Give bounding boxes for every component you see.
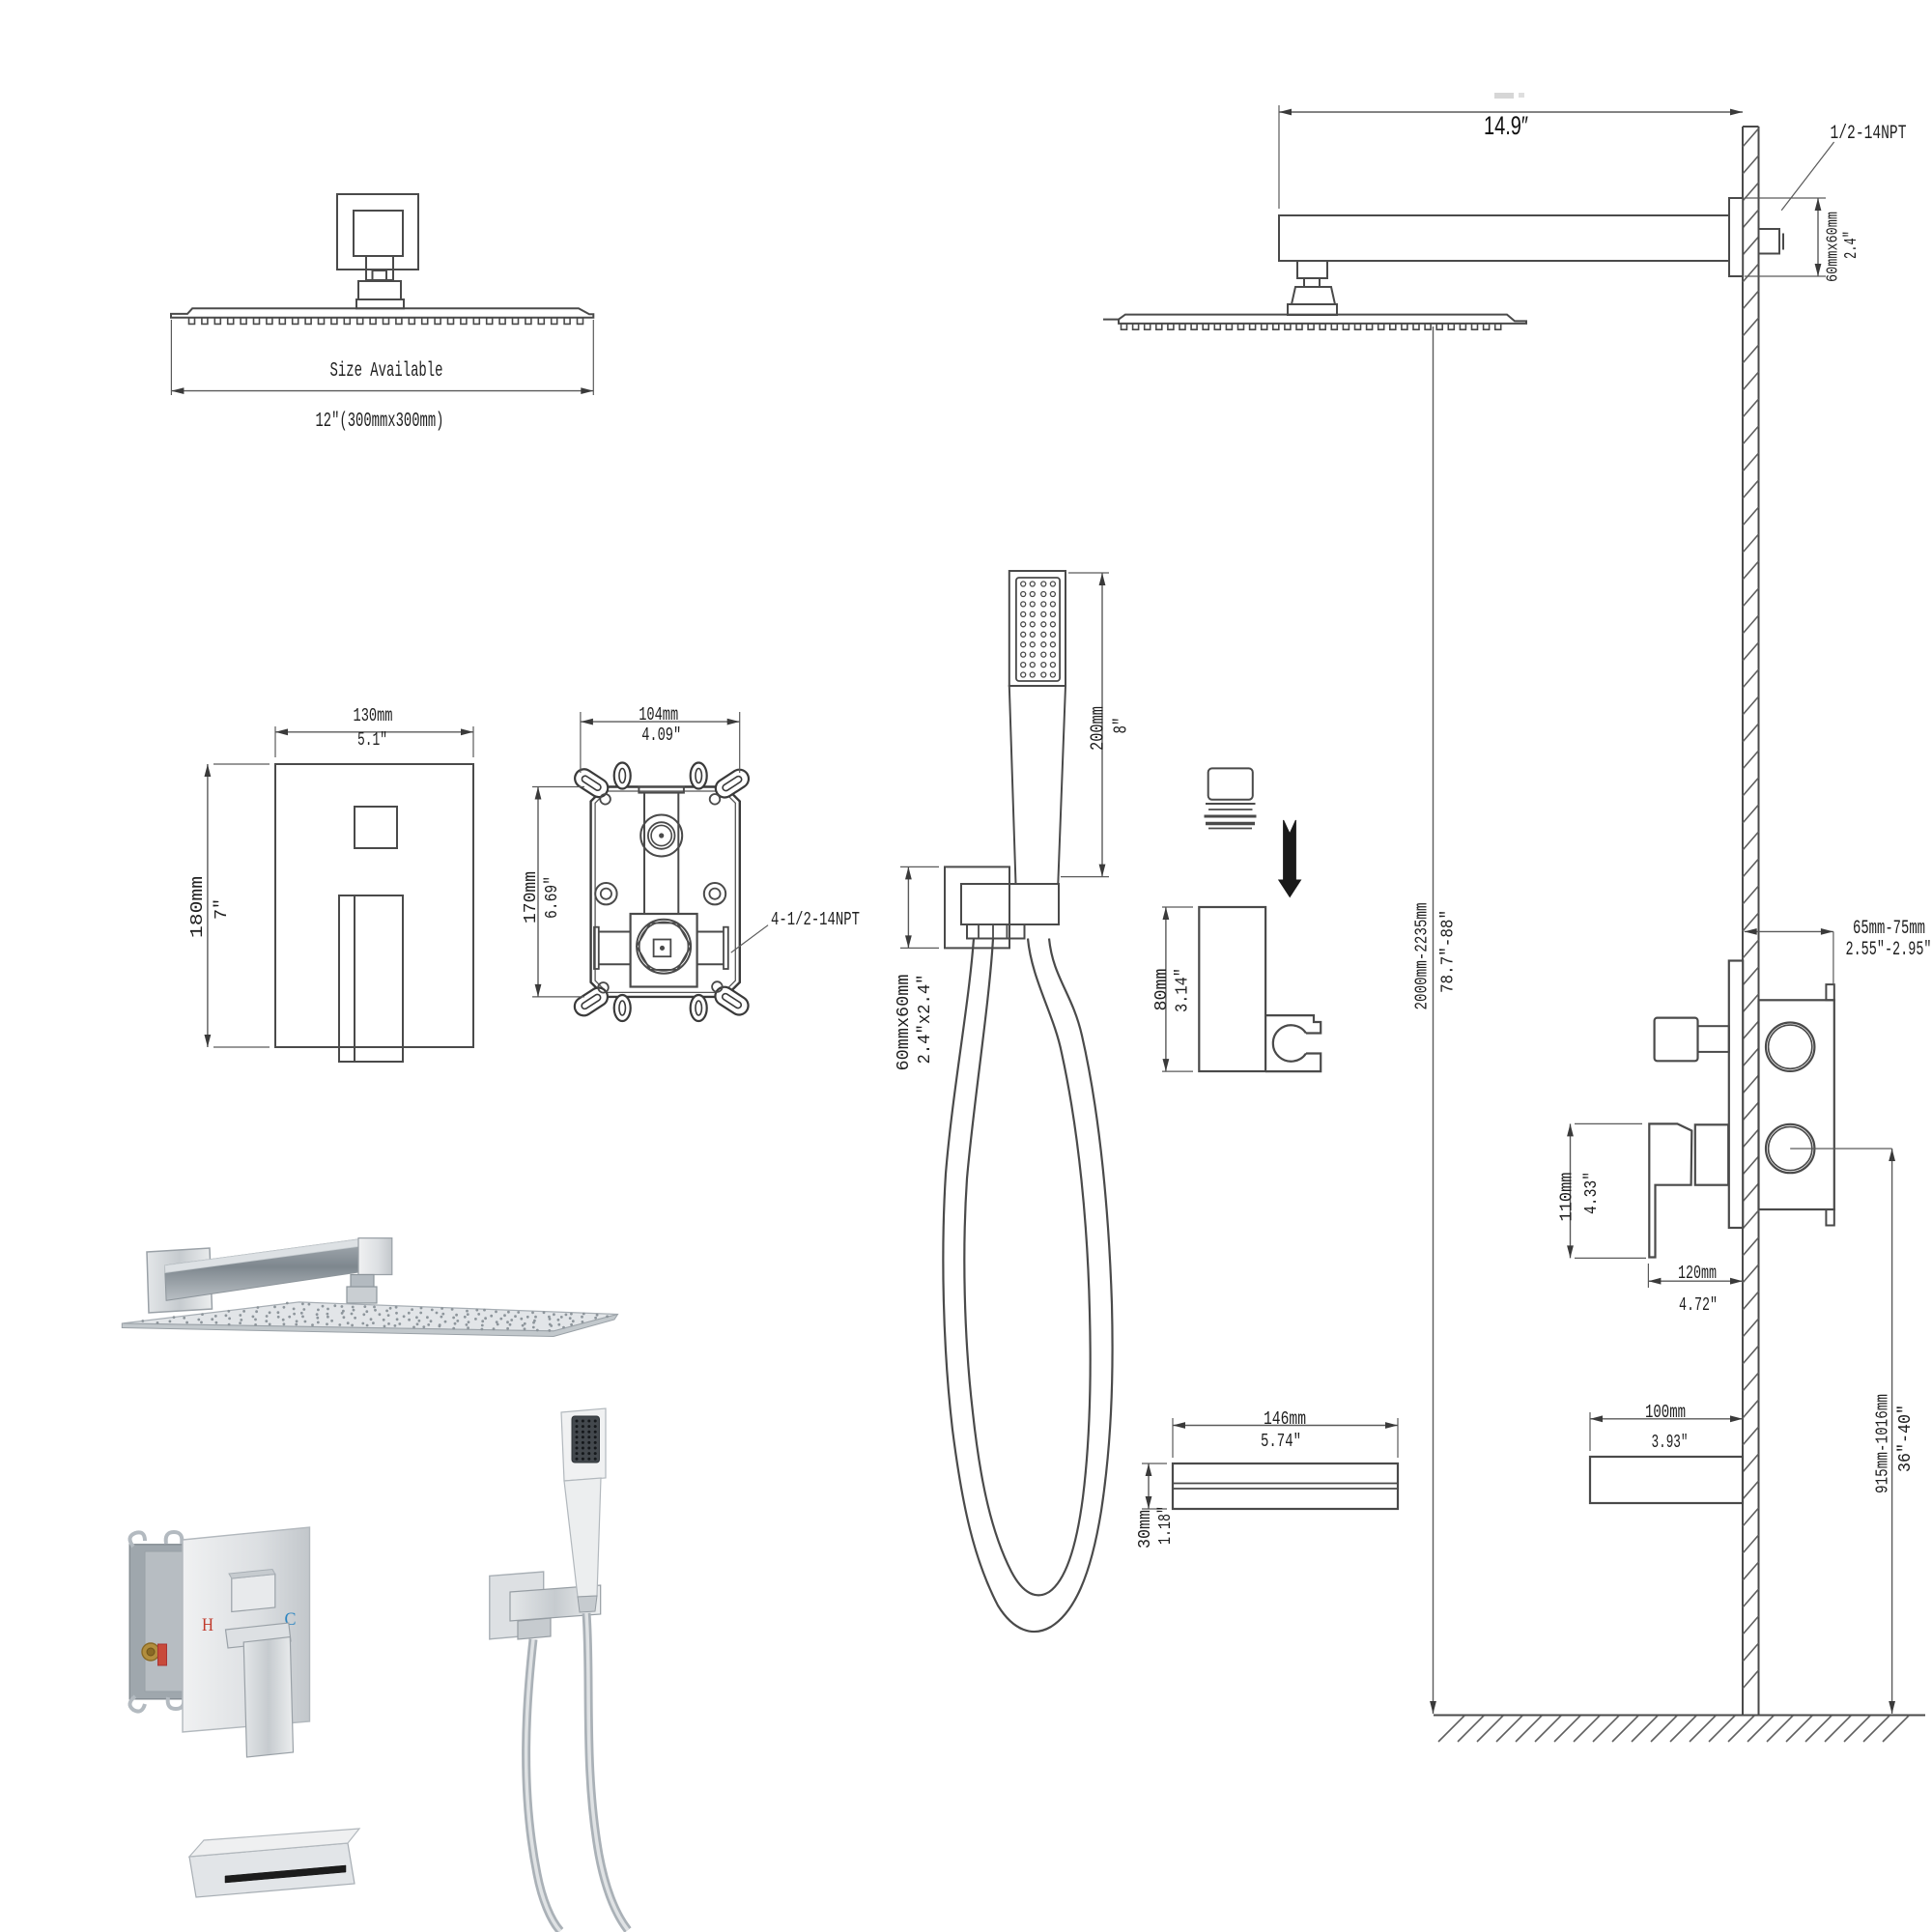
svg-text:3.93″: 3.93″: [1652, 1432, 1689, 1453]
svg-text:200mm: 200mm: [1087, 706, 1108, 751]
svg-text:14.9″: 14.9″: [1484, 111, 1528, 140]
svg-text:1.18″: 1.18″: [1156, 1506, 1176, 1545]
svg-text:2.55″-2.95″: 2.55″-2.95″: [1846, 939, 1932, 961]
svg-text:36″-40″: 36″-40″: [1896, 1405, 1916, 1472]
svg-text:180mm: 180mm: [188, 876, 208, 938]
svg-text:65mm-75mm: 65mm-75mm: [1853, 918, 1925, 940]
svg-text:Size Available: Size Available: [330, 360, 443, 383]
svg-text:6.69″: 6.69″: [543, 876, 562, 919]
svg-text:104mm: 104mm: [639, 704, 678, 725]
svg-text:5.74″: 5.74″: [1261, 1431, 1301, 1452]
svg-text:78.7″-88″: 78.7″-88″: [1438, 910, 1458, 993]
svg-text:12″(300mmx300mm): 12″(300mmx300mm): [316, 411, 444, 433]
svg-text:60mmx60mm: 60mmx60mm: [895, 975, 914, 1071]
svg-text:100mm: 100mm: [1645, 1402, 1686, 1423]
svg-text:2.4″: 2.4″: [1842, 231, 1861, 259]
svg-text:110mm: 110mm: [1557, 1173, 1577, 1222]
svg-text:80mm: 80mm: [1152, 969, 1172, 1011]
svg-text:7″: 7″: [213, 898, 232, 920]
svg-text:4.72″: 4.72″: [1679, 1294, 1718, 1316]
svg-text:120mm: 120mm: [1678, 1263, 1717, 1284]
svg-text:5.1″: 5.1″: [357, 729, 387, 751]
svg-text:2.4″x2.4″: 2.4″x2.4″: [916, 975, 935, 1065]
svg-text:8″: 8″: [1110, 718, 1131, 734]
svg-text:30mm: 30mm: [1136, 1510, 1155, 1548]
svg-text:4.33″: 4.33″: [1582, 1172, 1602, 1214]
svg-text:170mm: 170mm: [522, 871, 541, 923]
svg-text:915mm-1016mm: 915mm-1016mm: [1873, 1394, 1892, 1493]
svg-text:H: H: [202, 1615, 213, 1635]
svg-text:130mm: 130mm: [354, 705, 393, 726]
svg-text:4.09″: 4.09″: [641, 724, 681, 746]
svg-text:1/2-14NPT: 1/2-14NPT: [1831, 123, 1907, 145]
svg-text:4-1/2-14NPT: 4-1/2-14NPT: [771, 909, 860, 930]
svg-text:146mm: 146mm: [1264, 1408, 1306, 1430]
svg-text:3.14″: 3.14″: [1173, 968, 1192, 1012]
svg-text:2000mm-2235mm: 2000mm-2235mm: [1412, 903, 1432, 1010]
svg-text:60mmx60mm: 60mmx60mm: [1825, 212, 1843, 282]
